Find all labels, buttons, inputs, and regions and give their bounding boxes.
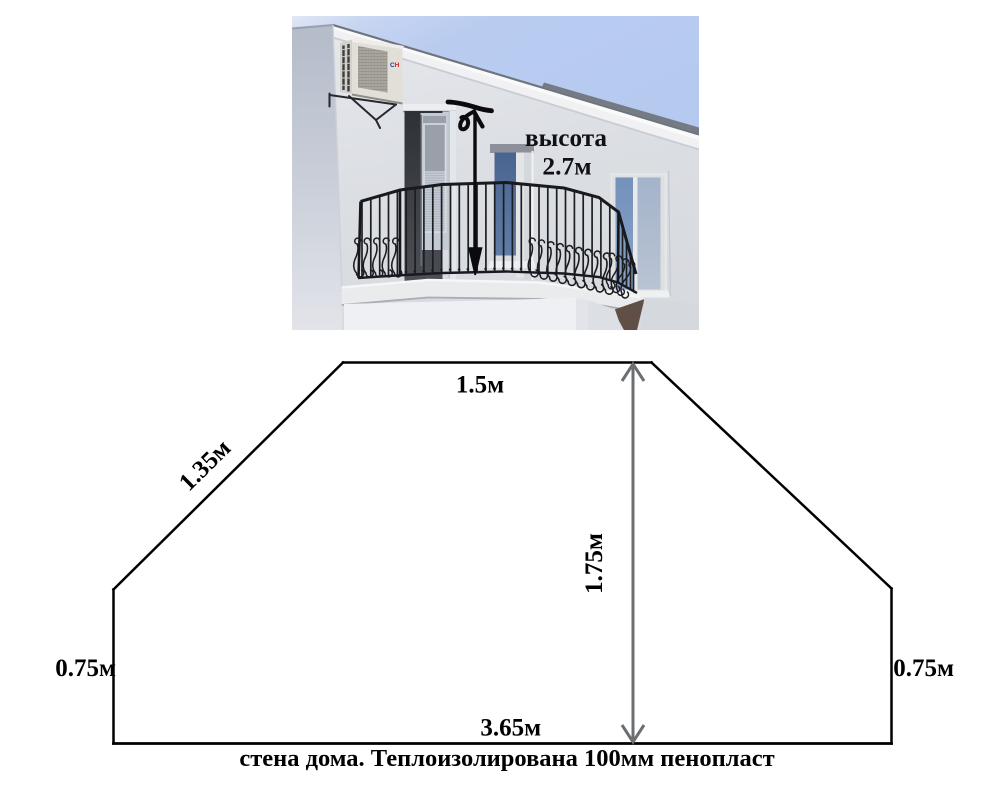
- svg-text:высота: высота: [525, 125, 607, 152]
- svg-text:1.35м: 1.35м: [174, 435, 236, 497]
- svg-text:1.5м: 1.5м: [456, 372, 504, 399]
- svg-text:H: H: [395, 62, 400, 69]
- svg-text:2.7м: 2.7м: [542, 152, 591, 181]
- svg-text:3.65м: 3.65м: [480, 715, 541, 742]
- svg-text:1.75м: 1.75м: [581, 533, 608, 594]
- svg-text:0.75м: 0.75м: [55, 655, 116, 682]
- svg-text:стена дома. Теплоизолирована 1: стена дома. Теплоизолирована 100мм пеноп…: [239, 745, 774, 772]
- svg-text:0.75м: 0.75м: [893, 655, 954, 682]
